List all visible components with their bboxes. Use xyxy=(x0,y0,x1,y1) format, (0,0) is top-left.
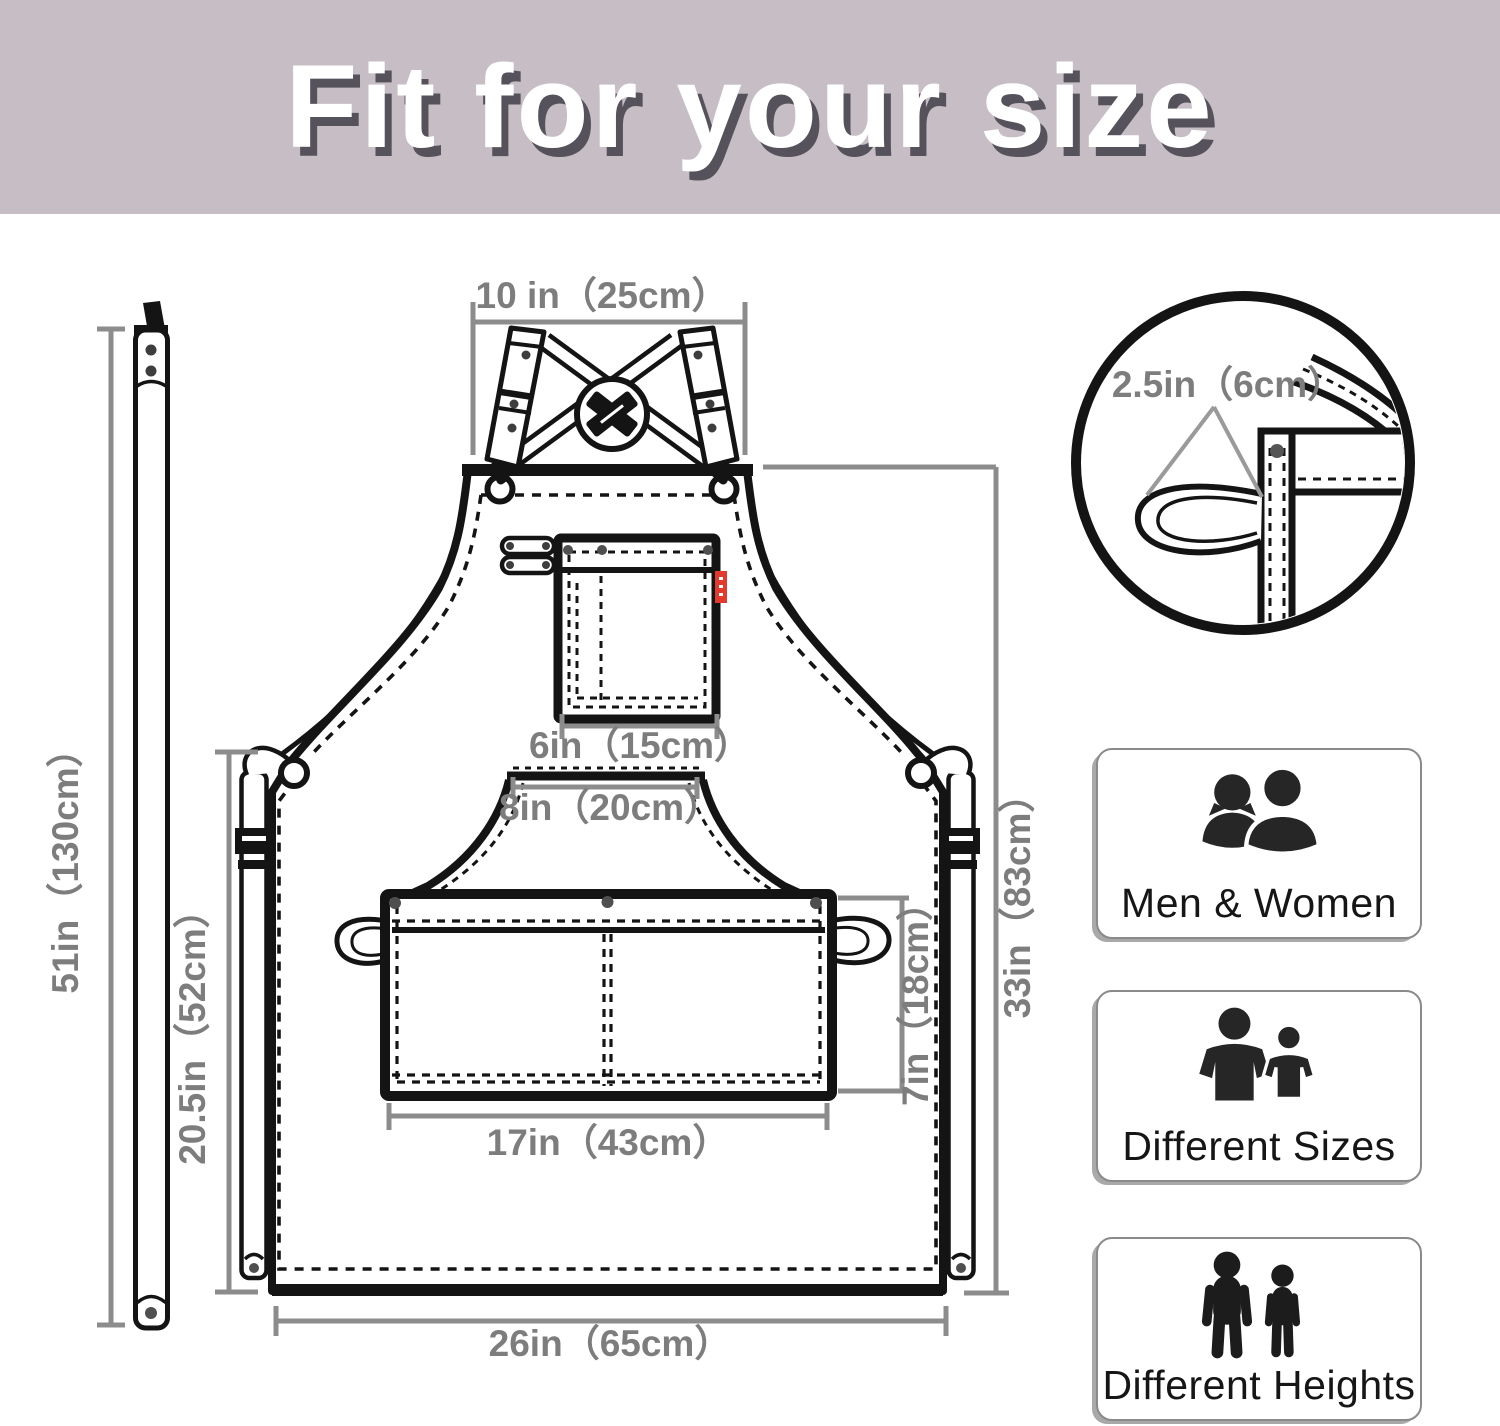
dim-strap-length: 51in（130cm） xyxy=(45,730,86,993)
dim-apron-length: 33in（83cm） xyxy=(997,776,1038,1019)
dim-chest-pocket-width: 6in（15cm） xyxy=(529,725,751,766)
feature-card-different-heights: Different Heights xyxy=(1096,1237,1422,1421)
dim-waist-pocket-depth: 7in（18cm） xyxy=(895,884,936,1106)
dim-side-length: 20.5in（52cm） xyxy=(172,891,213,1165)
chest-pocket xyxy=(558,538,727,719)
neck-strap-extended xyxy=(134,301,168,1328)
dim-bottom-width: 26in（65cm） xyxy=(489,1323,732,1364)
dim-towel-loop-width: 2.5in（6cm） xyxy=(1112,364,1344,405)
brand-tag xyxy=(715,571,727,603)
men-women-icon xyxy=(1098,760,1420,878)
cross-straps xyxy=(487,328,737,487)
infographic: Fit for your size xyxy=(0,0,1500,1426)
feature-label: Different Sizes xyxy=(1122,1123,1395,1170)
pen-loops xyxy=(502,538,554,573)
apron-size-diagram: 2.5in（6cm） 10 in（25cm） 51in（130cm） 20.5i… xyxy=(0,0,1500,1426)
different-heights-icon xyxy=(1098,1249,1420,1361)
feature-label: Men & Women xyxy=(1121,880,1397,927)
feature-card-men-women: Men & Women xyxy=(1096,748,1422,939)
back-ring xyxy=(577,379,647,449)
dim-neck-width: 10 in（25cm） xyxy=(476,275,729,316)
feature-label: Different Heights xyxy=(1102,1362,1415,1409)
different-sizes-icon xyxy=(1098,1002,1420,1120)
dim-bib-bottom-width: 8in（20cm） xyxy=(499,787,721,828)
towel-loop-detail: 2.5in（6cm） xyxy=(1076,296,1436,651)
waist-pocket xyxy=(337,894,889,1096)
feature-card-different-sizes: Different Sizes xyxy=(1096,990,1422,1182)
dim-waist-pocket-width: 17in（43cm） xyxy=(487,1122,730,1163)
